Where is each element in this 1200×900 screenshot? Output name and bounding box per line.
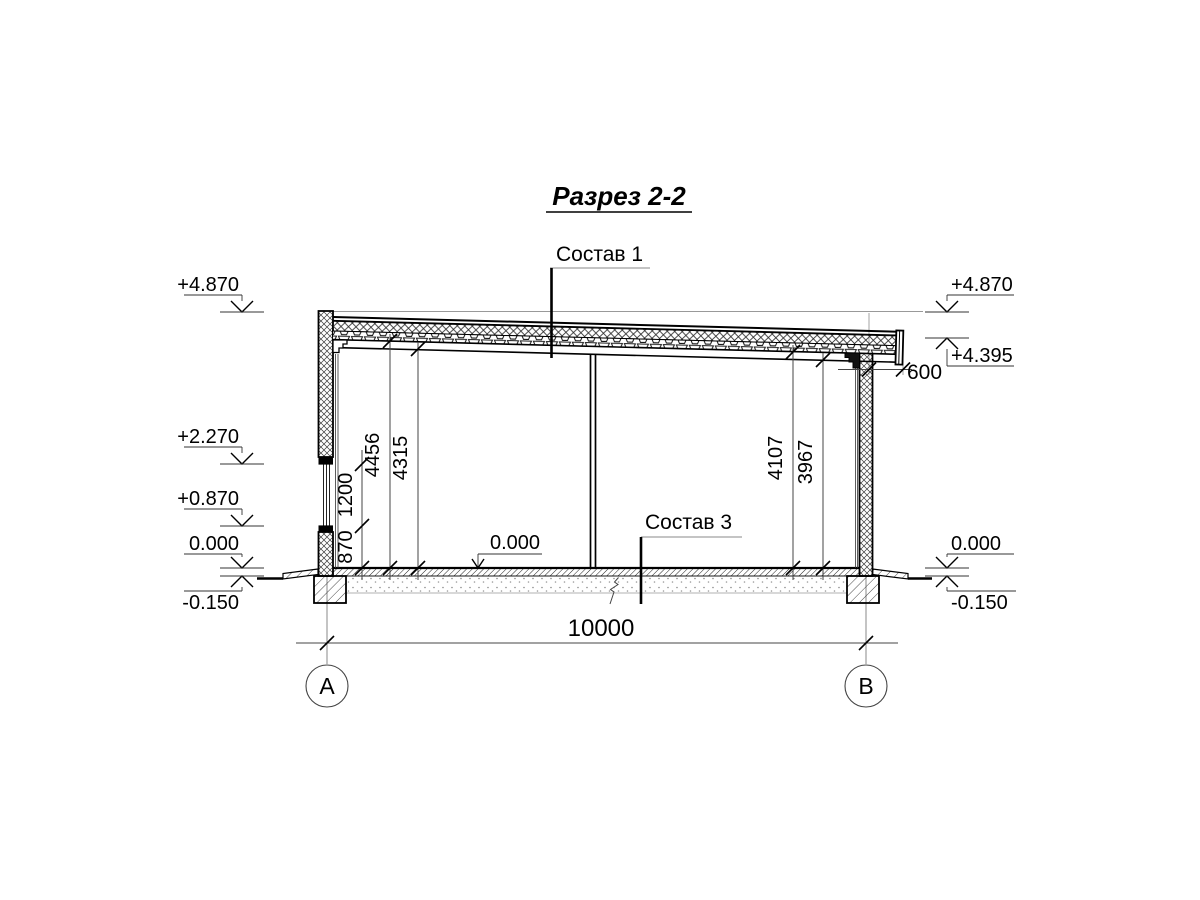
title: Разрез 2-2 [552,181,686,211]
elevation-value: 0.000 [189,533,239,555]
callout-floor-label: Состав 3 [645,511,732,534]
dim-10000: 10000 [568,615,635,642]
dim-3967: 3967 [795,440,817,485]
elevation-value: +2.270 [177,426,239,448]
drawing-title: Разрез 2-2 [546,181,692,212]
dim-1200: 1200 [335,473,357,518]
elevation-value: -0.150 [182,592,239,614]
axis-bubble-b: B [845,665,887,707]
elevation-value: 0.000 [951,533,1001,555]
paper-background [0,0,1200,900]
foundation-left [314,576,346,603]
window-sill [319,526,334,532]
elevation-value: 0.000 [490,532,540,554]
elevation-value: +0.870 [177,488,239,510]
dim-4107: 4107 [765,436,787,481]
window-lintel [319,457,334,464]
dim-4315: 4315 [390,436,412,481]
elevation-value: +4.870 [177,274,239,296]
floor-slab [333,568,860,593]
dim-4456: 4456 [362,433,384,478]
elevation-value: +4.870 [951,274,1013,296]
axis-bubble-a: A [306,665,348,707]
foundation-right [847,576,879,603]
dim-870: 870 [335,530,357,563]
dim-600: 600 [907,361,942,384]
axis-b-label: B [858,673,873,699]
elevation-value: +4.395 [951,345,1013,367]
axis-a-label: A [319,673,335,699]
elevation-value: -0.150 [951,592,1008,614]
section-drawing-sheet: 1200 870 4456 4315 4107 3967 600 1000 [0,0,1200,900]
callout-roof-label: Состав 1 [556,243,643,266]
section-drawing: 1200 870 4456 4315 4107 3967 600 1000 [0,0,1200,900]
